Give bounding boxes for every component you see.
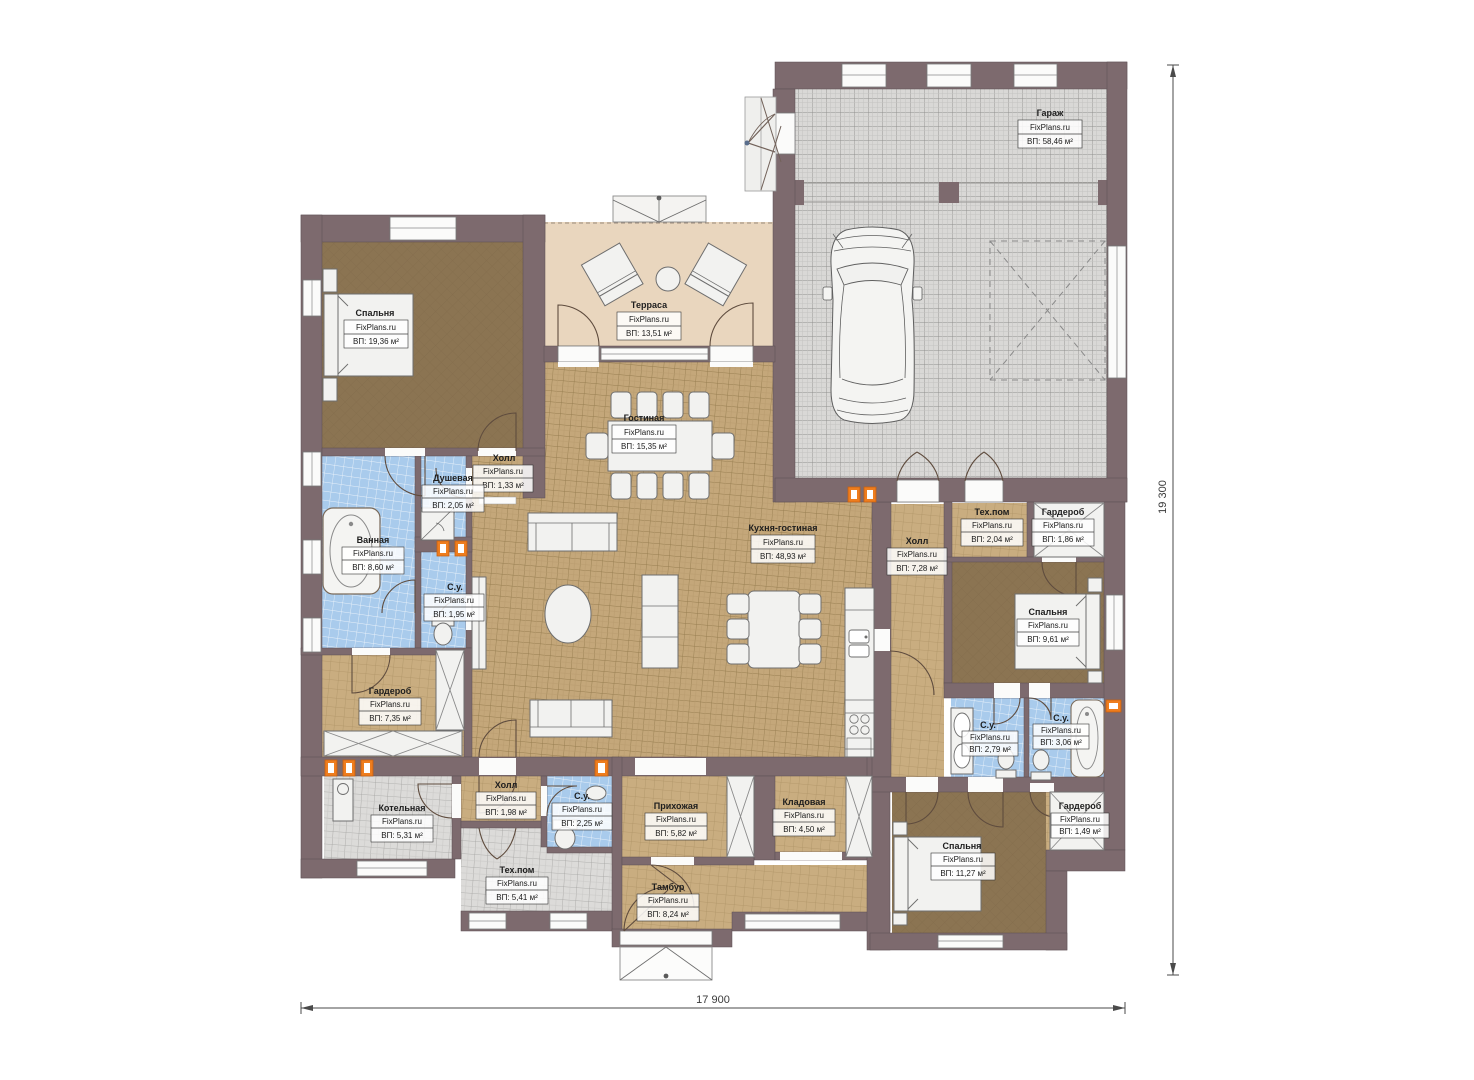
svg-text:FixPlans.ru: FixPlans.ru [1060, 815, 1100, 824]
svg-text:ВП: 3,06 м²: ВП: 3,06 м² [1040, 738, 1082, 747]
svg-text:FixPlans.ru: FixPlans.ru [784, 811, 824, 820]
svg-text:ВП: 5,82 м²: ВП: 5,82 м² [655, 829, 697, 838]
svg-text:Терраса: Терраса [631, 300, 668, 310]
svg-text:Кухня-гостиная: Кухня-гостиная [749, 523, 818, 533]
svg-text:Холл: Холл [906, 536, 929, 546]
svg-text:FixPlans.ru: FixPlans.ru [562, 805, 602, 814]
svg-text:FixPlans.ru: FixPlans.ru [624, 428, 664, 437]
svg-text:FixPlans.ru: FixPlans.ru [972, 521, 1012, 530]
svg-text:19 300: 19 300 [1157, 480, 1169, 514]
svg-text:ВП: 5,31 м²: ВП: 5,31 м² [381, 831, 423, 840]
svg-text:Душевая: Душевая [433, 473, 473, 483]
svg-text:FixPlans.ru: FixPlans.ru [1043, 521, 1083, 530]
svg-text:ВП: 1,49 м²: ВП: 1,49 м² [1059, 827, 1101, 836]
svg-text:FixPlans.ru: FixPlans.ru [1028, 621, 1068, 630]
svg-text:Спальня: Спальня [943, 841, 982, 851]
svg-text:Прихожая: Прихожая [654, 801, 698, 811]
svg-text:С.у.: С.у. [574, 791, 590, 801]
svg-text:ВП: 11,27 м²: ВП: 11,27 м² [940, 869, 986, 878]
svg-text:Тамбур: Тамбур [652, 882, 685, 892]
svg-text:FixPlans.ru: FixPlans.ru [1030, 123, 1070, 132]
svg-text:Гараж: Гараж [1037, 108, 1064, 118]
svg-text:ВП: 7,35 м²: ВП: 7,35 м² [369, 714, 411, 723]
svg-text:ВП: 13,51 м²: ВП: 13,51 м² [626, 329, 672, 338]
svg-text:FixPlans.ru: FixPlans.ru [370, 700, 410, 709]
svg-text:FixPlans.ru: FixPlans.ru [897, 550, 937, 559]
svg-text:Холл: Холл [495, 780, 518, 790]
svg-text:FixPlans.ru: FixPlans.ru [648, 896, 688, 905]
svg-text:FixPlans.ru: FixPlans.ru [486, 794, 526, 803]
svg-text:FixPlans.ru: FixPlans.ru [629, 315, 669, 324]
svg-text:Тех.пом: Тех.пом [975, 507, 1010, 517]
svg-text:ВП: 15,35 м²: ВП: 15,35 м² [621, 442, 667, 451]
svg-text:ВП: 8,24 м²: ВП: 8,24 м² [647, 910, 689, 919]
svg-text:С.у.: С.у. [980, 720, 996, 730]
svg-text:ВП: 1,33 м²: ВП: 1,33 м² [482, 481, 524, 490]
svg-text:ВП: 2,25 м²: ВП: 2,25 м² [561, 819, 603, 828]
svg-text:Котельная: Котельная [378, 803, 425, 813]
svg-text:FixPlans.ru: FixPlans.ru [434, 596, 474, 605]
svg-text:FixPlans.ru: FixPlans.ru [943, 855, 983, 864]
svg-text:Ванная: Ванная [357, 535, 390, 545]
svg-text:ВП: 1,98 м²: ВП: 1,98 м² [485, 808, 527, 817]
svg-text:С.у.: С.у. [447, 582, 463, 592]
svg-text:Кладовая: Кладовая [782, 797, 825, 807]
svg-text:Холл: Холл [493, 453, 516, 463]
svg-text:ВП: 1,95 м²: ВП: 1,95 м² [433, 610, 475, 619]
svg-text:ВП: 9,61 м²: ВП: 9,61 м² [1027, 635, 1069, 644]
svg-text:ВП: 8,60 м²: ВП: 8,60 м² [352, 563, 394, 572]
svg-text:Гардероб: Гардероб [1059, 801, 1102, 811]
svg-text:FixPlans.ru: FixPlans.ru [433, 487, 473, 496]
svg-text:FixPlans.ru: FixPlans.ru [356, 323, 396, 332]
svg-text:Тех.пом: Тех.пом [500, 865, 535, 875]
svg-text:ВП: 2,05 м²: ВП: 2,05 м² [432, 501, 474, 510]
svg-text:FixPlans.ru: FixPlans.ru [353, 549, 393, 558]
svg-text:ВП: 5,41 м²: ВП: 5,41 м² [496, 893, 538, 902]
svg-text:ВП: 58,46 м²: ВП: 58,46 м² [1027, 137, 1073, 146]
svg-text:ВП: 4,50 м²: ВП: 4,50 м² [783, 825, 825, 834]
svg-text:ВП: 19,36 м²: ВП: 19,36 м² [353, 337, 399, 346]
svg-text:ВП: 2,04 м²: ВП: 2,04 м² [971, 535, 1013, 544]
svg-text:FixPlans.ru: FixPlans.ru [382, 817, 422, 826]
svg-text:FixPlans.ru: FixPlans.ru [1041, 726, 1081, 735]
svg-text:Гостиная: Гостиная [624, 413, 665, 423]
svg-text:FixPlans.ru: FixPlans.ru [497, 879, 537, 888]
svg-text:С.у.: С.у. [1053, 713, 1069, 723]
svg-text:Гардероб: Гардероб [1042, 507, 1085, 517]
svg-text:FixPlans.ru: FixPlans.ru [763, 538, 803, 547]
svg-text:ВП: 1,86 м²: ВП: 1,86 м² [1042, 535, 1084, 544]
svg-text:Спальня: Спальня [1029, 607, 1068, 617]
svg-text:Гардероб: Гардероб [369, 686, 412, 696]
svg-text:FixPlans.ru: FixPlans.ru [656, 815, 696, 824]
svg-text:17 900: 17 900 [696, 994, 730, 1006]
svg-text:ВП: 2,79 м²: ВП: 2,79 м² [969, 745, 1011, 754]
svg-text:ВП: 7,28 м²: ВП: 7,28 м² [896, 564, 938, 573]
svg-text:FixPlans.ru: FixPlans.ru [483, 467, 523, 476]
svg-text:Спальня: Спальня [356, 308, 395, 318]
svg-text:FixPlans.ru: FixPlans.ru [970, 733, 1010, 742]
svg-text:ВП: 48,93 м²: ВП: 48,93 м² [760, 552, 806, 561]
